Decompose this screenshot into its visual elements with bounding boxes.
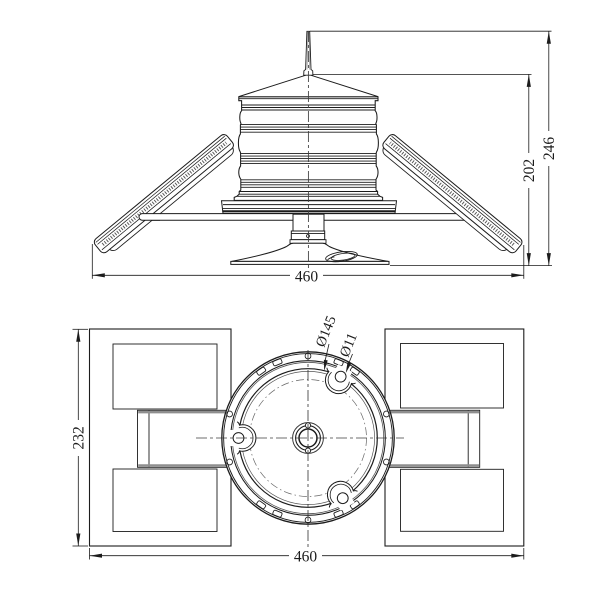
svg-text:246: 246 xyxy=(541,137,558,161)
svg-text:460: 460 xyxy=(294,549,318,566)
svg-text:Ø145: Ø145 xyxy=(313,314,340,350)
svg-text:Ø11: Ø11 xyxy=(337,331,361,360)
svg-text:232: 232 xyxy=(71,426,88,449)
svg-text:202: 202 xyxy=(521,159,538,182)
svg-text:460: 460 xyxy=(295,268,319,285)
